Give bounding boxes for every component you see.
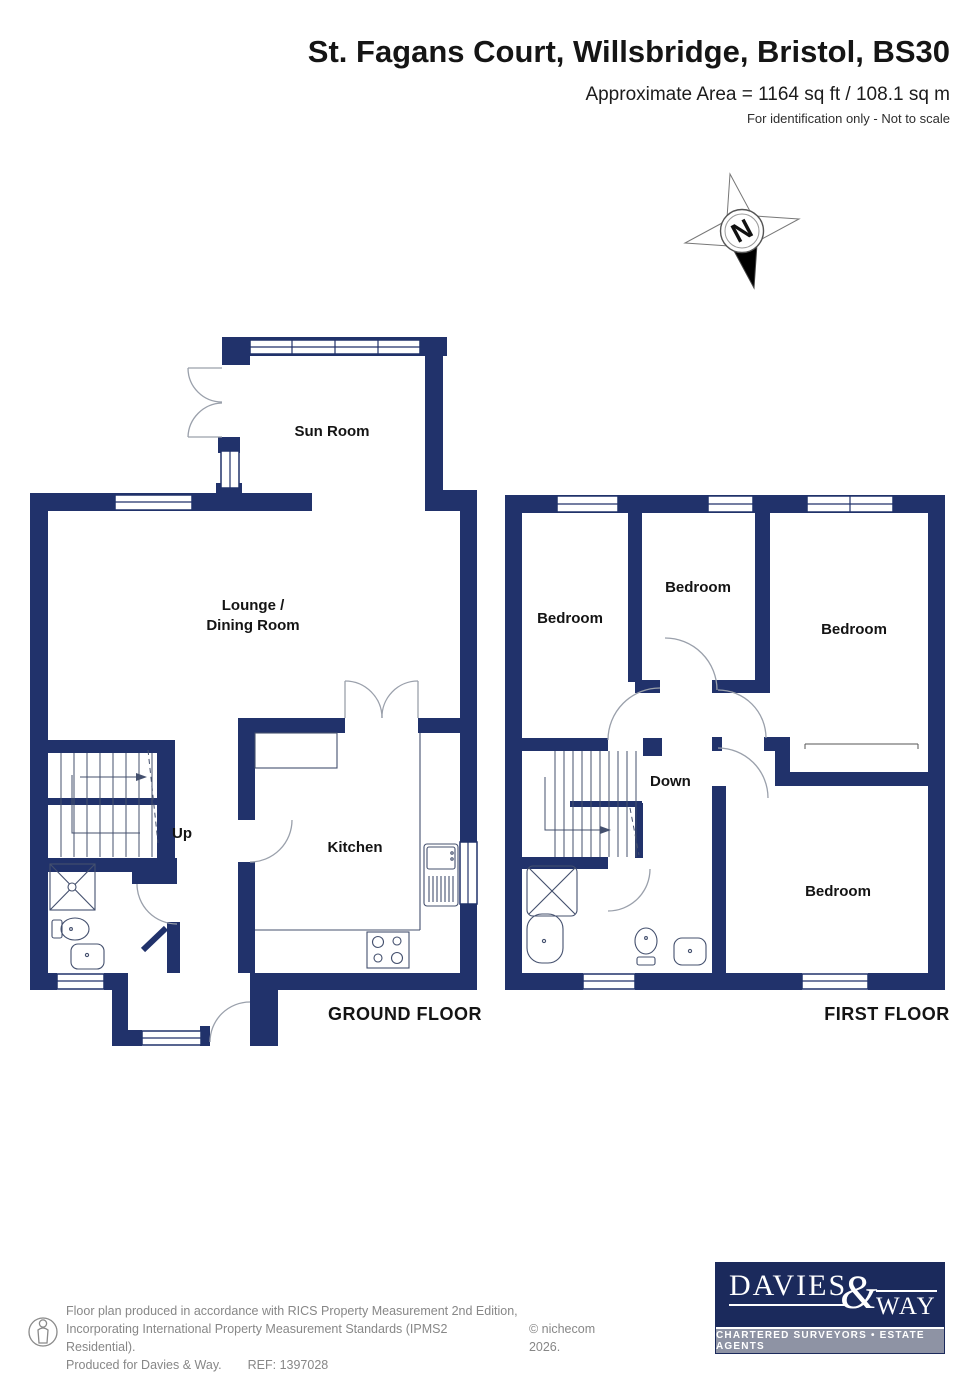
window-icon: [250, 340, 420, 354]
room-label-kitchen: Kitchen: [327, 839, 382, 856]
window-icon: [807, 496, 893, 512]
kitchen-sink-icon: [424, 844, 458, 906]
window-icon: [802, 974, 868, 989]
kitchen-counter: [255, 733, 420, 930]
window-icon: [583, 974, 635, 989]
logo-word-davies: DAVIES: [729, 1269, 847, 1306]
ground-floor-title: GROUND FLOOR: [328, 1004, 482, 1024]
room-label-bedroom-front: Bedroom: [805, 883, 871, 900]
window-icon: [708, 496, 753, 512]
basin-icon: [71, 944, 104, 969]
toilet-icon: [52, 918, 89, 940]
footer-line2: Incorporating International Property Mea…: [66, 1320, 503, 1356]
room-label-bedroom-middle: Bedroom: [665, 579, 731, 596]
hob-icon: [367, 932, 409, 968]
ground-floor-windows: [57, 340, 477, 1045]
compass-rose-icon: N: [685, 174, 799, 288]
window-icon: [57, 974, 104, 989]
footer-copyright: © nichecom 2026.: [529, 1320, 626, 1356]
stairs-label-down: Down: [650, 773, 691, 790]
basin-icon: [674, 938, 706, 965]
footer-produced: Produced for Davies & Way.: [66, 1356, 222, 1374]
nichecom-person-icon: [26, 1312, 60, 1352]
davies-and-way-logo: DAVIES & WAY CHARTERED SURVEYORS • ESTAT…: [715, 1262, 945, 1354]
room-label-bedroom-back-left: Bedroom: [537, 610, 603, 627]
window-icon: [557, 496, 618, 512]
window-icon: [460, 842, 477, 904]
toilet-icon: [635, 928, 657, 965]
room-label-lounge-line1: Lounge /: [222, 597, 285, 614]
shower-bath-icon: [527, 866, 577, 963]
logo-ampersand: &: [840, 1265, 877, 1320]
footer: Floor plan produced in accordance with R…: [66, 1302, 626, 1374]
logo-tagline: CHARTERED SURVEYORS • ESTATE AGENTS: [716, 1327, 944, 1353]
footer-ref: REF: 1397028: [248, 1356, 329, 1374]
window-icon: [142, 1031, 201, 1045]
room-label-bedroom-right: Bedroom: [821, 621, 887, 638]
window-icon: [115, 495, 192, 510]
wardrobe-opening-line: [805, 744, 918, 749]
footer-line1: Floor plan produced in accordance with R…: [66, 1302, 626, 1320]
stairs-label-up: Up: [172, 825, 192, 842]
floorplan-page: St. Fagans Court, Willsbridge, Bristol, …: [0, 0, 980, 1385]
logo-word-way: WAY: [876, 1290, 937, 1321]
first-floor-title: FIRST FLOOR: [824, 1004, 950, 1024]
window-icon: [221, 451, 239, 488]
room-label-lounge-line2: Dining Room: [206, 617, 299, 634]
room-label-sun-room: Sun Room: [295, 423, 370, 440]
floorplan-drawing: N: [0, 0, 980, 1385]
ground-floor-walls: [30, 337, 477, 1046]
